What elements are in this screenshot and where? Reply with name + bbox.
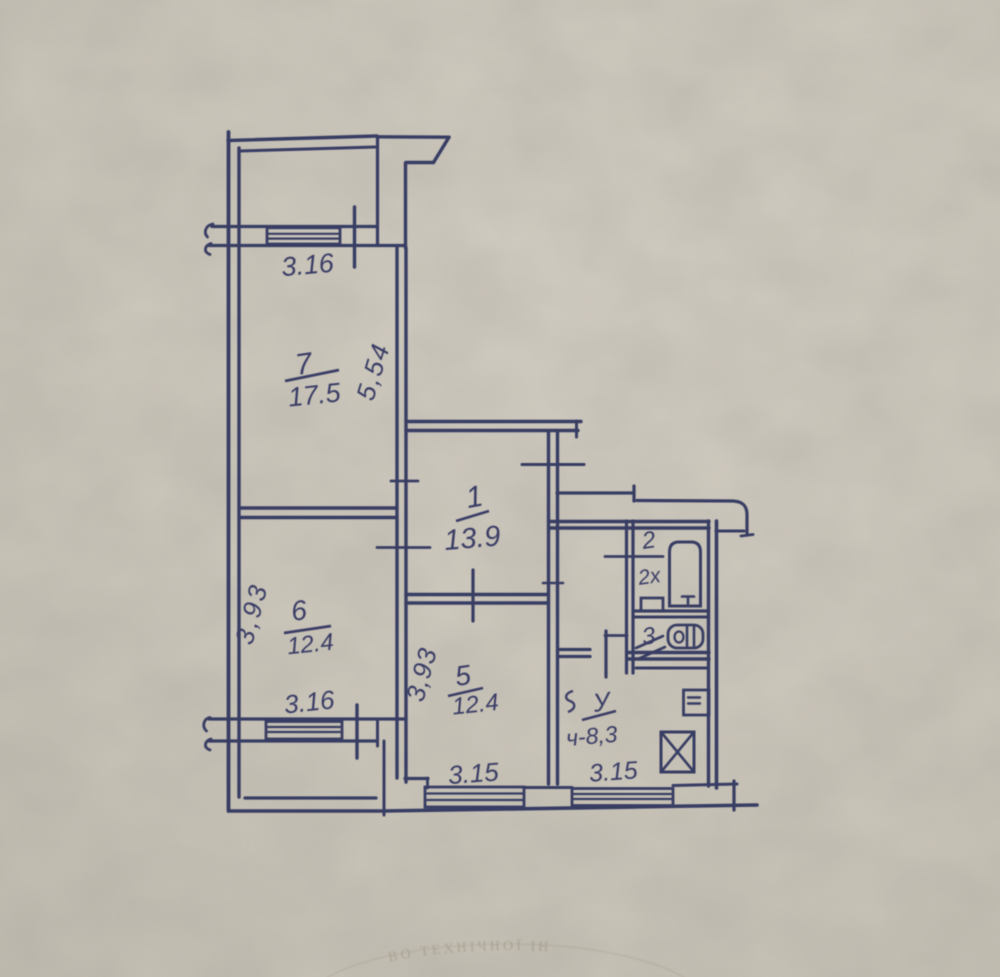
svg-text:12.4: 12.4: [451, 689, 500, 721]
svg-text:17.5: 17.5: [287, 377, 343, 412]
svg-text:3.15: 3.15: [588, 756, 639, 787]
svg-text:13.9: 13.9: [443, 520, 502, 557]
svg-text:3.16: 3.16: [280, 248, 336, 283]
svg-text:3.15: 3.15: [447, 757, 500, 790]
svg-text:ч-8,3: ч-8,3: [565, 721, 619, 751]
svg-text:12.4: 12.4: [286, 629, 335, 661]
svg-text:3.16: 3.16: [282, 684, 336, 719]
